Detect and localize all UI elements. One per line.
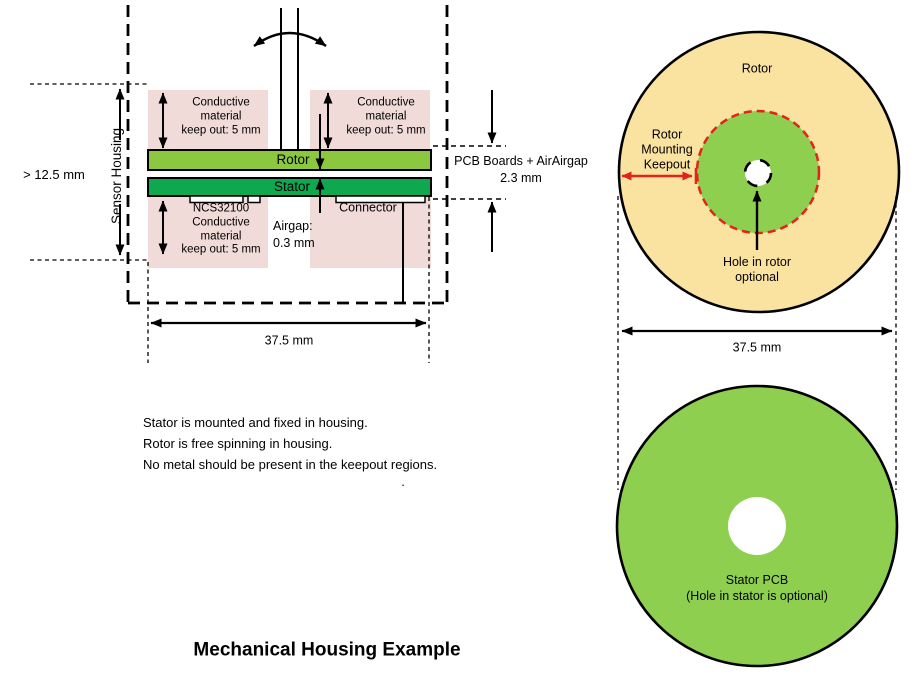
keepout-top-left-label: Conductive material keep out: 5 mm bbox=[161, 96, 281, 137]
diagram-title: Mechanical Housing Example bbox=[193, 638, 460, 661]
rotor-disc-label: Rotor bbox=[742, 61, 773, 76]
rotation-arrow bbox=[254, 33, 326, 46]
shaft bbox=[281, 8, 298, 150]
keepout-bottom-left-label: NCS32100 Conductive material keep out: 5… bbox=[156, 202, 286, 257]
connector-label: Connector bbox=[339, 200, 397, 215]
pcb-airgap-callout-label: PCB Boards + AirAirgap 2.3 mm bbox=[441, 153, 601, 187]
height-dimension-label: > 12.5 mm bbox=[23, 167, 85, 183]
stator-pcb-label: Stator PCB (Hole in stator is optional) bbox=[686, 572, 828, 604]
width-dimension-label-right: 37.5 mm bbox=[733, 340, 782, 355]
airgap-label: Airgap: 0.3 mm bbox=[273, 218, 315, 252]
sensor-housing-label: Sensor Housing bbox=[109, 128, 125, 224]
mechanical-housing-diagram: Sensor Housing > 12.5 mm Conductive mate… bbox=[0, 0, 918, 675]
rotor-mounting-keepout-label: Rotor Mounting Keepout bbox=[641, 128, 692, 173]
keepout-top-right-label: Conductive material keep out: 5 mm bbox=[326, 96, 446, 137]
stator-hole bbox=[728, 497, 786, 555]
rotor-bar-label: Rotor bbox=[276, 152, 309, 168]
rotor-hole bbox=[745, 160, 771, 186]
stator-bar-label: Stator bbox=[274, 179, 310, 195]
notes-text: Stator is mounted and fixed in housing. … bbox=[143, 412, 437, 475]
rotor-hole-label: Hole in rotor optional bbox=[723, 255, 791, 285]
stray-period: . bbox=[401, 474, 405, 490]
width-dimension-label-left: 37.5 mm bbox=[265, 333, 314, 348]
